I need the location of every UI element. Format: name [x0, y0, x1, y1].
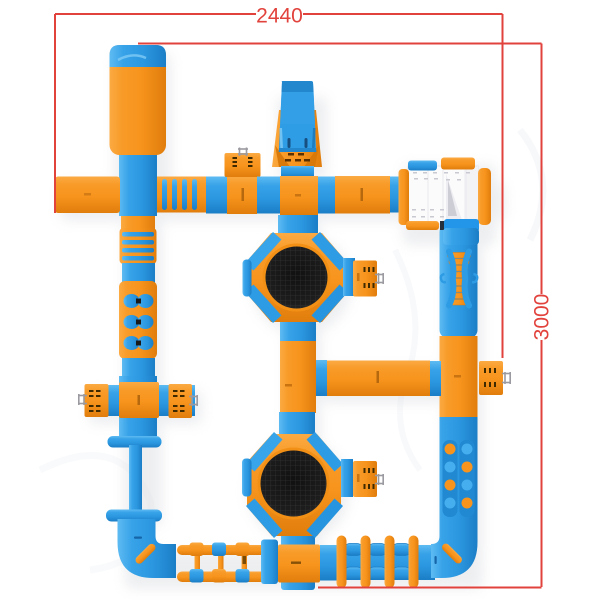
- svg-text:3000: 3000: [531, 294, 554, 341]
- svg-text:2440: 2440: [256, 5, 303, 28]
